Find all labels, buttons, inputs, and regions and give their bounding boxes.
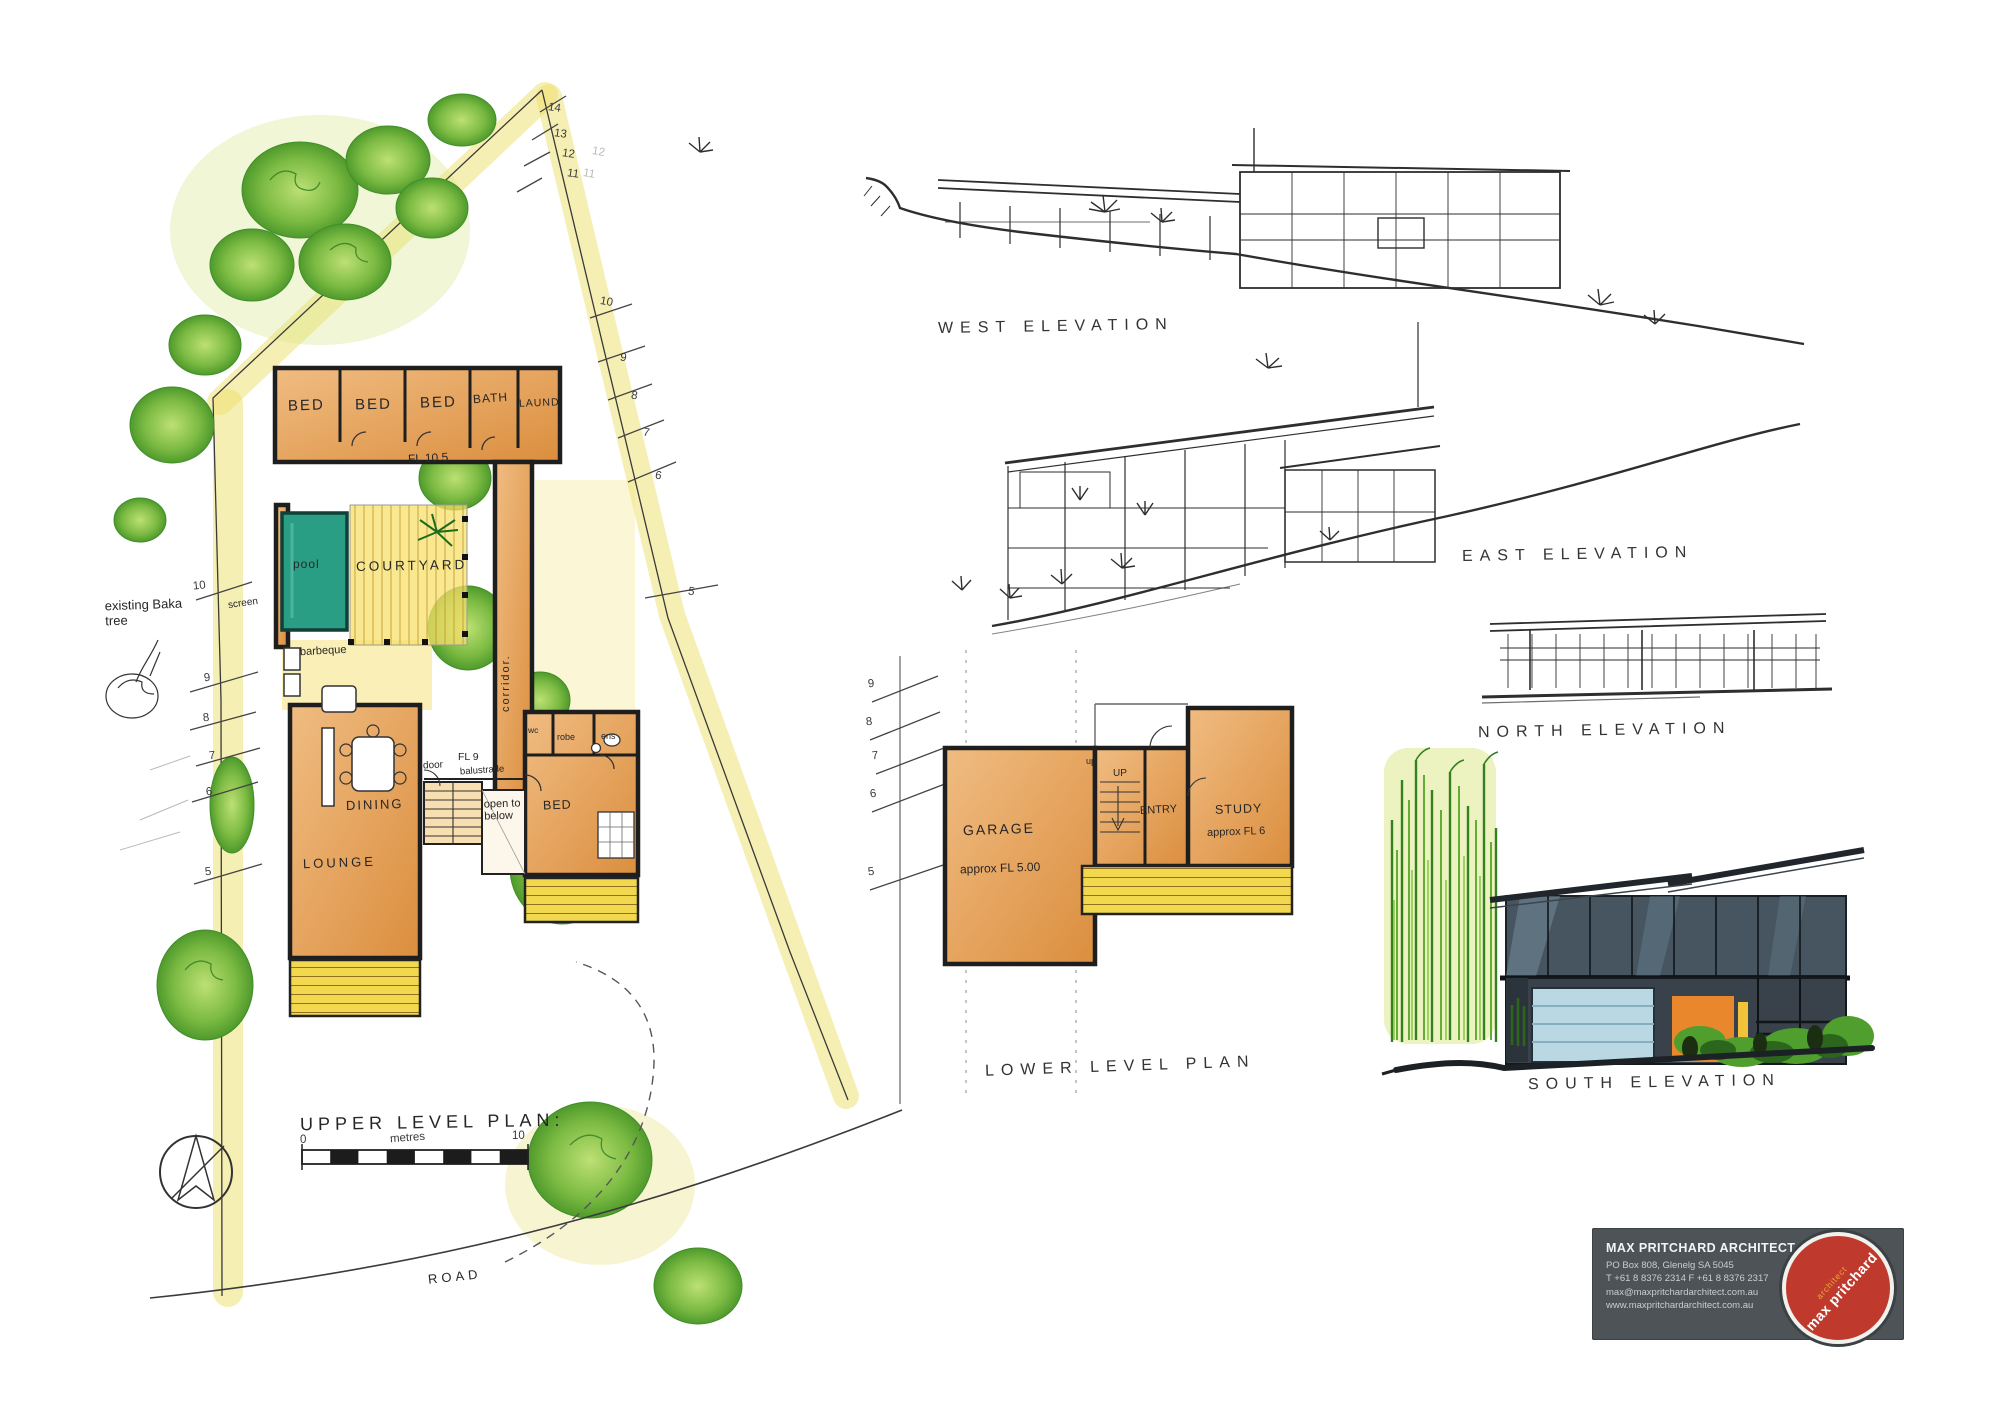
architect-stamp: MAX PRITCHARD ARCHITECT PO Box 808, Glen… [1592, 1228, 1904, 1340]
contour-top-faint-11: 11 [582, 167, 596, 182]
lower-contour-9: 9 [867, 678, 875, 691]
north-elevation-sketch [1482, 614, 1832, 703]
room-label-ens: ens [601, 731, 616, 741]
contour-top-13: 13 [553, 127, 567, 142]
stamp-website: www.maxpritchardarchitect.com.au [1606, 1299, 1806, 1312]
west-elevation-sketch [689, 128, 1804, 368]
room-label-garage: GARAGE [963, 821, 1035, 839]
room-label-bed-3: BED [420, 394, 457, 412]
note-corridor: corridor. [500, 654, 512, 712]
contour-top-faint-12: 12 [591, 145, 606, 160]
room-label-wc: wc [528, 726, 538, 736]
note-floor-level-mid: FL 9 [458, 752, 479, 764]
lower-contour-7: 7 [871, 750, 879, 763]
room-label-entry: ENTRY [1140, 803, 1178, 817]
note-garage-fl: approx FL 5.00 [960, 861, 1041, 877]
room-label-study: STUDY [1215, 801, 1263, 817]
room-label-bed-1: BED [288, 397, 325, 415]
room-label-laundry: LAUND [519, 397, 560, 410]
room-label-pool: pool [293, 558, 320, 571]
contour-left-8: 8 [202, 712, 210, 725]
stamp-email: max@maxpritchardarchitect.com.au [1606, 1286, 1806, 1299]
stamp-logo-badge: architect max pritchard [1782, 1232, 1894, 1344]
east-elevation-sketch [952, 322, 1800, 634]
contour-left-7: 7 [208, 750, 216, 763]
note-floor-level-upper: FL 10.5 [408, 451, 449, 467]
note-barbeque: barbeque [300, 644, 347, 659]
note-door: door [423, 759, 444, 771]
contour-top-11: 11 [566, 167, 580, 181]
stamp-firm-name: MAX PRITCHARD ARCHITECT [1606, 1241, 1806, 1255]
south-elevation-sketch [1382, 748, 1874, 1074]
lower-contour-5: 5 [867, 866, 875, 879]
lower-contour-8: 8 [865, 716, 873, 729]
stamp-address: PO Box 808, Glenelg SA 5045 [1606, 1259, 1806, 1272]
lower-contour-6: 6 [869, 788, 877, 801]
contour-top-14: 14 [547, 101, 561, 116]
note-open-to-below: open to below [484, 797, 522, 823]
contour-right-10: 10 [599, 295, 614, 310]
room-label-lounge: LOUNGE [303, 855, 376, 872]
scale-bar [302, 1144, 528, 1170]
note-existing-tree: existing Baka tree [105, 597, 183, 629]
contour-left-10: 10 [192, 579, 206, 593]
scale-zero: 0 [300, 1134, 306, 1147]
scale-unit: metres [390, 1131, 426, 1146]
architectural-sketch-sheet: BED BED BED BATH LAUND FL 10.5 pool COUR… [0, 0, 1996, 1412]
contour-left-6: 6 [205, 786, 213, 799]
room-label-dining: DINING [346, 797, 404, 814]
stamp-logo-name: max pritchard [1803, 1249, 1881, 1333]
contour-left-9: 9 [203, 672, 211, 685]
room-label-robe: robe [557, 732, 575, 742]
lower-plan-sketch [870, 650, 1292, 1104]
room-label-bed-2: BED [355, 397, 392, 414]
contour-left-5: 5 [204, 866, 212, 879]
room-label-bed-4: BED [543, 798, 572, 813]
note-up-small: up [1086, 756, 1096, 766]
scale-ten: 10 [512, 1130, 525, 1143]
note-up: UP [1113, 768, 1127, 779]
note-study-fl: approx FL 6 [1207, 825, 1266, 839]
contour-top-12: 12 [561, 147, 575, 162]
stamp-phones: T +61 8 8376 2314 F +61 8 8376 2317 [1606, 1272, 1806, 1285]
sketch-line-art [0, 0, 1996, 1412]
room-label-bath: BATH [473, 391, 509, 407]
room-label-courtyard: COURTYARD [356, 557, 468, 574]
